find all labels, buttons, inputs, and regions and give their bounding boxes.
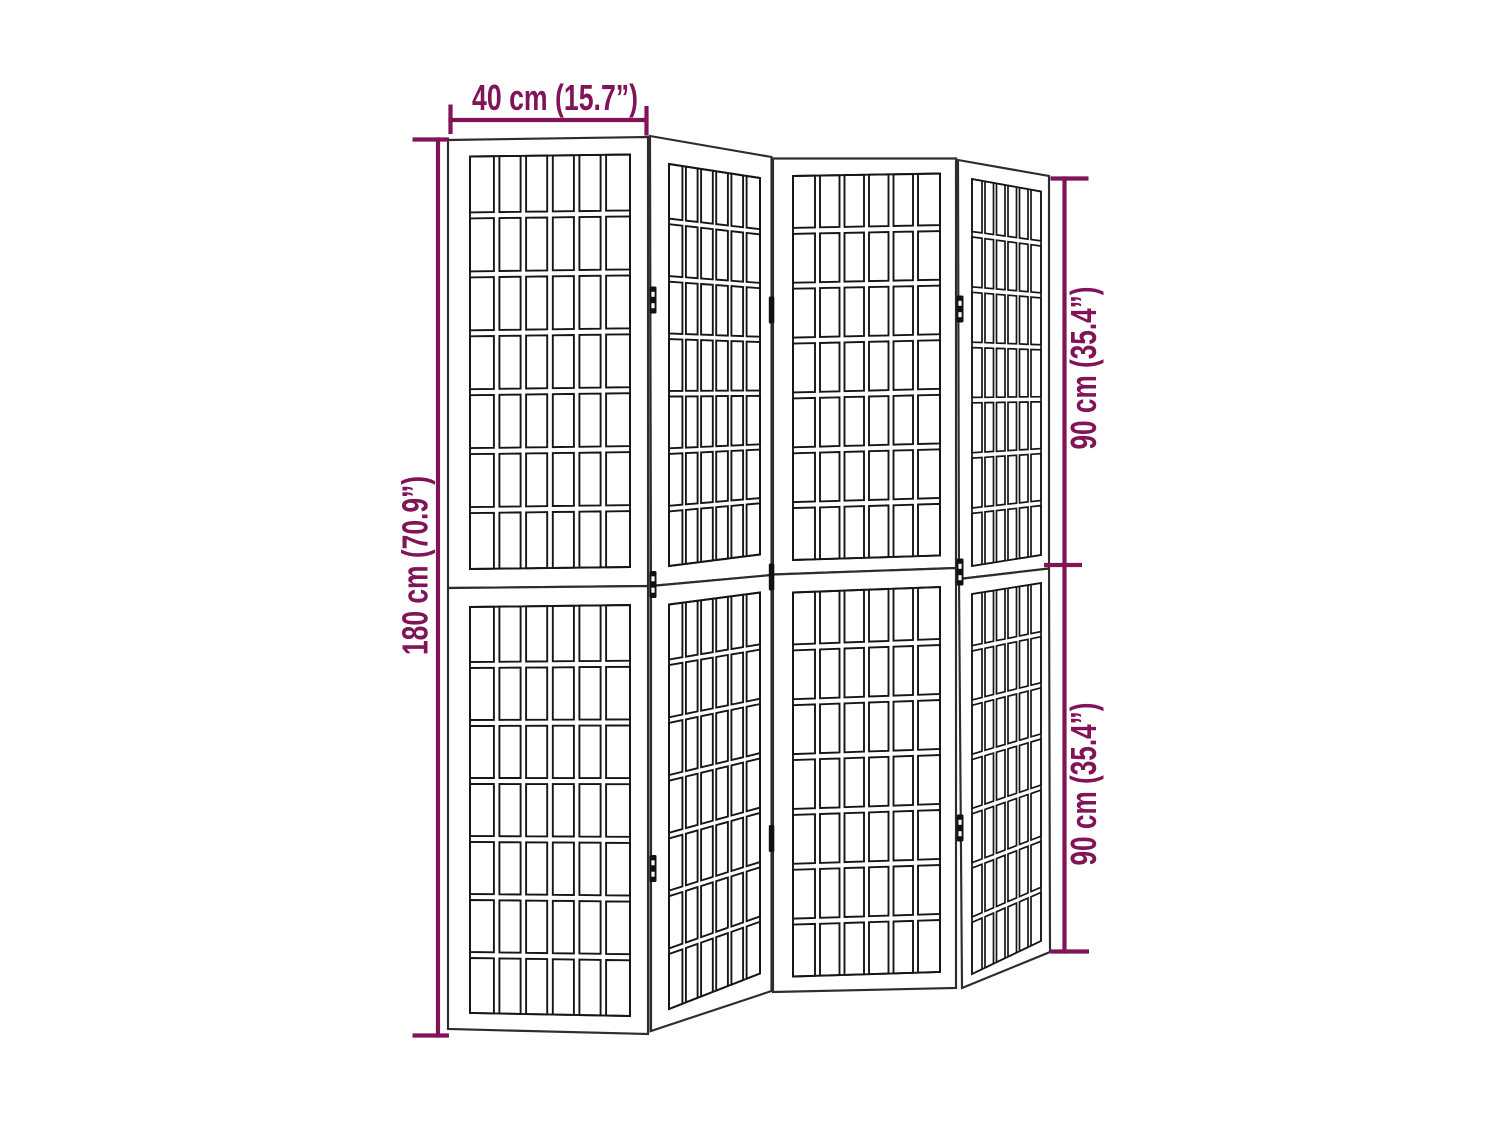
- svg-text:90 cm (35.4”): 90 cm (35.4”): [1063, 703, 1104, 866]
- svg-text:180 cm (70.9”): 180 cm (70.9”): [395, 476, 436, 655]
- svg-text:90 cm (35.4”): 90 cm (35.4”): [1063, 287, 1104, 450]
- svg-text:40 cm (15.7”): 40 cm (15.7”): [472, 77, 638, 118]
